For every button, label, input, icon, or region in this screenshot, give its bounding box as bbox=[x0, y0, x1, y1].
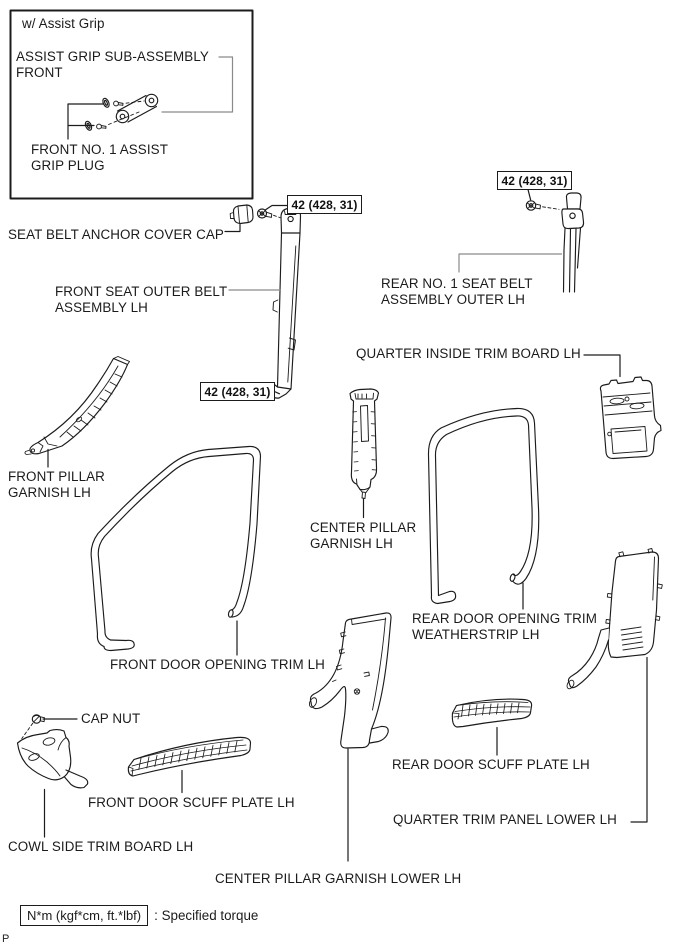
label-cap-nut: CAP NUT bbox=[81, 711, 140, 727]
torque-callout-rear: 42 (428, 31) bbox=[497, 171, 572, 190]
label-front-door-opening-trim-lh: FRONT DOOR OPENING TRIM LH bbox=[110, 657, 325, 673]
quarter-inside-trim-board-drawing bbox=[600, 377, 661, 459]
front-door-opening-trim-drawing bbox=[91, 446, 260, 650]
label-center-pillar-garnish-lower-lh: CENTER PILLAR GARNISH LOWER LH bbox=[215, 871, 461, 887]
center-pillar-garnish-lower-drawing bbox=[308, 613, 391, 748]
label-center-pillar-garnish-lh: CENTER PILLAR GARNISH LH bbox=[310, 520, 416, 552]
torque-callout-front-lower: 42 (428, 31) bbox=[200, 382, 275, 401]
torque-note-text: : Specified torque bbox=[154, 908, 258, 923]
front-door-scuff-plate-drawing bbox=[128, 737, 250, 776]
label-cowl-side-trim-board-lh: COWL SIDE TRIM BOARD LH bbox=[8, 839, 193, 855]
label-rear-door-scuff-plate-lh: REAR DOOR SCUFF PLATE LH bbox=[392, 757, 590, 773]
label-quarter-inside-trim-board-lh: QUARTER INSIDE TRIM BOARD LH bbox=[356, 346, 581, 362]
rear-no1-seat-belt-drawing bbox=[562, 193, 584, 292]
rear-door-opening-trim-weatherstrip-drawing bbox=[428, 408, 538, 603]
center-pillar-garnish-drawing bbox=[350, 389, 379, 499]
anchor-bolt-rear-drawing bbox=[526, 201, 559, 210]
label-front-seat-outer-belt-assembly-lh: FRONT SEAT OUTER BELT ASSEMBLY LH bbox=[55, 284, 227, 316]
label-quarter-trim-panel-lower-lh: QUARTER TRIM PANEL LOWER LH bbox=[393, 812, 617, 828]
seat-belt-anchor-cover-cap-drawing bbox=[230, 205, 253, 224]
label-seat-belt-anchor-cover-cap: SEAT BELT ANCHOR COVER CAP bbox=[8, 227, 224, 243]
rear-door-scuff-plate-drawing bbox=[452, 699, 531, 727]
parts-diagram-page: w/ Assist Grip ASSIST GRIP SUB-ASSEMBLY … bbox=[0, 0, 690, 952]
page-marker: P bbox=[2, 933, 9, 945]
torque-unit-box: N*m (kgf*cm, ft.*lbf) bbox=[20, 905, 148, 926]
label-assist-grip-sub-assembly-front: ASSIST GRIP SUB-ASSEMBLY FRONT bbox=[16, 49, 209, 81]
cowl-side-trim-board-drawing bbox=[18, 730, 88, 788]
label-front-no1-assist-grip-plug: FRONT NO. 1 ASSIST GRIP PLUG bbox=[31, 142, 168, 174]
label-front-pillar-garnish-lh: FRONT PILLAR GARNISH LH bbox=[8, 469, 105, 501]
label-rear-no1-seat-belt-assembly-outer-lh: REAR NO. 1 SEAT BELT ASSEMBLY OUTER LH bbox=[381, 276, 533, 308]
variant-box-title: w/ Assist Grip bbox=[22, 16, 105, 32]
torque-legend: N*m (kgf*cm, ft.*lbf) : Specified torque bbox=[20, 905, 258, 926]
label-front-door-scuff-plate-lh: FRONT DOOR SCUFF PLATE LH bbox=[88, 795, 295, 811]
front-pillar-garnish-drawing bbox=[25, 357, 130, 455]
anchor-bolt-front-upper-drawing bbox=[258, 209, 281, 218]
torque-callout-front-upper: 42 (428, 31) bbox=[287, 195, 362, 214]
front-seat-outer-belt-drawing bbox=[272, 209, 301, 399]
label-rear-door-opening-trim-weatherstrip-lh: REAR DOOR OPENING TRIM WEATHERSTRIP LH bbox=[412, 611, 597, 643]
assist-grip-drawing bbox=[84, 94, 158, 131]
